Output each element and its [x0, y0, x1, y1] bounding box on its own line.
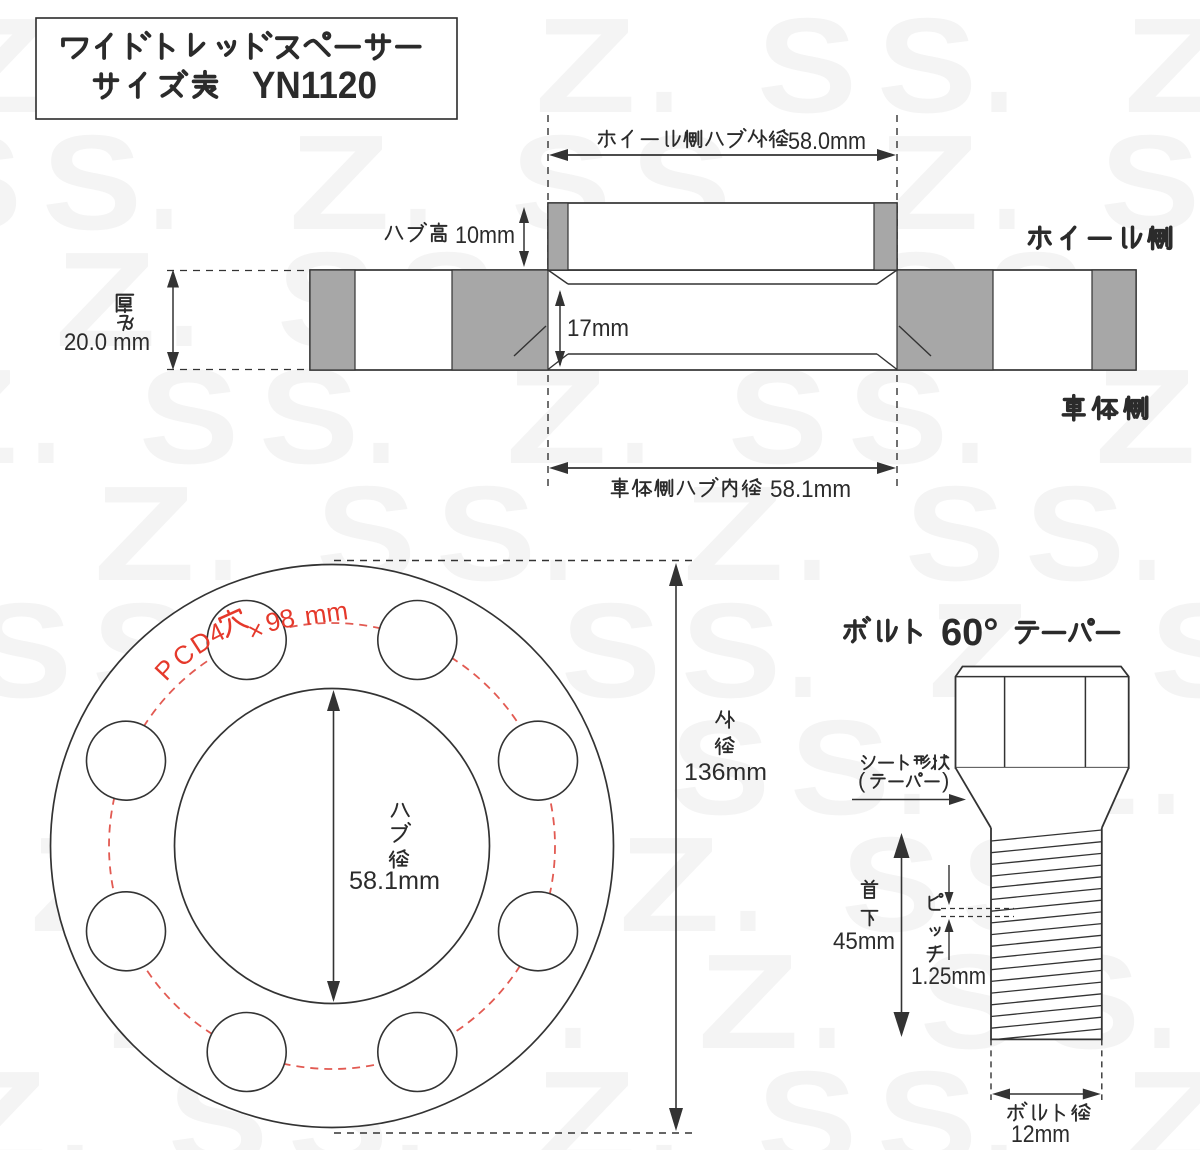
svg-text:10mm: 10mm	[455, 222, 515, 249]
svg-text:Z: Z	[535, 1043, 636, 1150]
svg-text:20.0 mm: 20.0 mm	[64, 329, 150, 356]
svg-text:12mm: 12mm	[1011, 1121, 1070, 1148]
svg-text:S: S	[757, 1043, 857, 1150]
svg-text:S: S	[0, 575, 72, 726]
svg-text:YN1120: YN1120	[252, 65, 377, 107]
svg-text:60°: 60°	[941, 612, 998, 654]
svg-text:S: S	[1025, 458, 1125, 609]
svg-text:Z: Z	[1124, 1043, 1200, 1150]
svg-text:58.1mm: 58.1mm	[770, 476, 851, 503]
svg-text:45mm: 45mm	[833, 928, 895, 955]
svg-text:.: .	[31, 341, 61, 492]
svg-text:17mm: 17mm	[567, 315, 629, 342]
svg-text:.: .	[1151, 692, 1181, 843]
svg-text:.: .	[649, 1043, 679, 1150]
svg-text:1.25mm: 1.25mm	[911, 963, 986, 990]
svg-text:): )	[942, 768, 949, 793]
svg-text:S: S	[757, 0, 857, 141]
svg-text:58.1mm: 58.1mm	[349, 867, 440, 895]
svg-text:mm: mm	[303, 595, 350, 631]
svg-text:58.0mm: 58.0mm	[788, 128, 866, 155]
svg-text:.: .	[0, 692, 3, 843]
svg-text:136mm: 136mm	[684, 759, 767, 786]
svg-text:(: (	[858, 768, 866, 793]
svg-text:Z: Z	[0, 341, 18, 492]
svg-text:S: S	[0, 107, 22, 258]
svg-text:.: .	[60, 1043, 90, 1150]
svg-text:S: S	[877, 1043, 977, 1150]
svg-text:S: S	[436, 458, 536, 609]
svg-text:Z: Z	[0, 1043, 47, 1150]
